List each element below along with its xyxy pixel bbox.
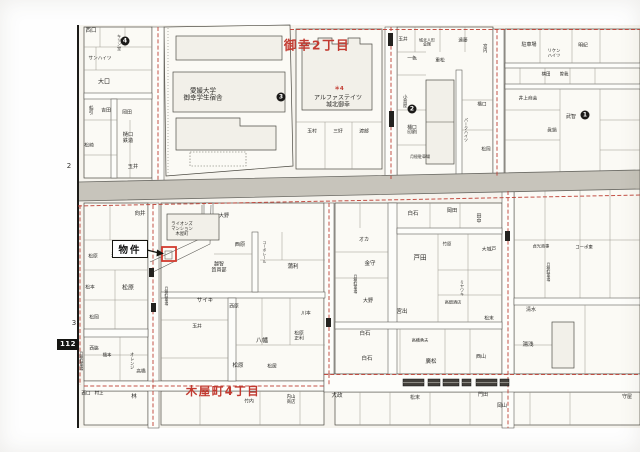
dorm-building-2 [173,72,285,112]
grid-number-upper: 2 [67,162,71,170]
sheet-number-badge: 112 [57,339,79,350]
lions-mansion-building [167,214,219,240]
grid-number-lower: 3 [72,319,76,327]
map-paper[interactable]: 西口キリン堂サンハイツ大口船引吉田岡田樋口 鉄造松崎玉井愛媛大学 御幸学生宿舎ア… [0,0,640,452]
legend-note: ＊4 [334,84,343,92]
property-callout: 物件 [112,240,148,258]
street-c-upper [493,29,504,177]
map-screenshot: 西口キリン堂サンハイツ大口船引吉田岡田樋口 鉄造松崎玉井愛媛大学 御幸学生宿舎ア… [0,0,640,452]
dorm-building-1 [176,36,282,60]
right-large-building [552,322,574,368]
map-base [0,0,640,452]
arcade-row [403,379,509,386]
alpha-states-building [302,38,372,110]
